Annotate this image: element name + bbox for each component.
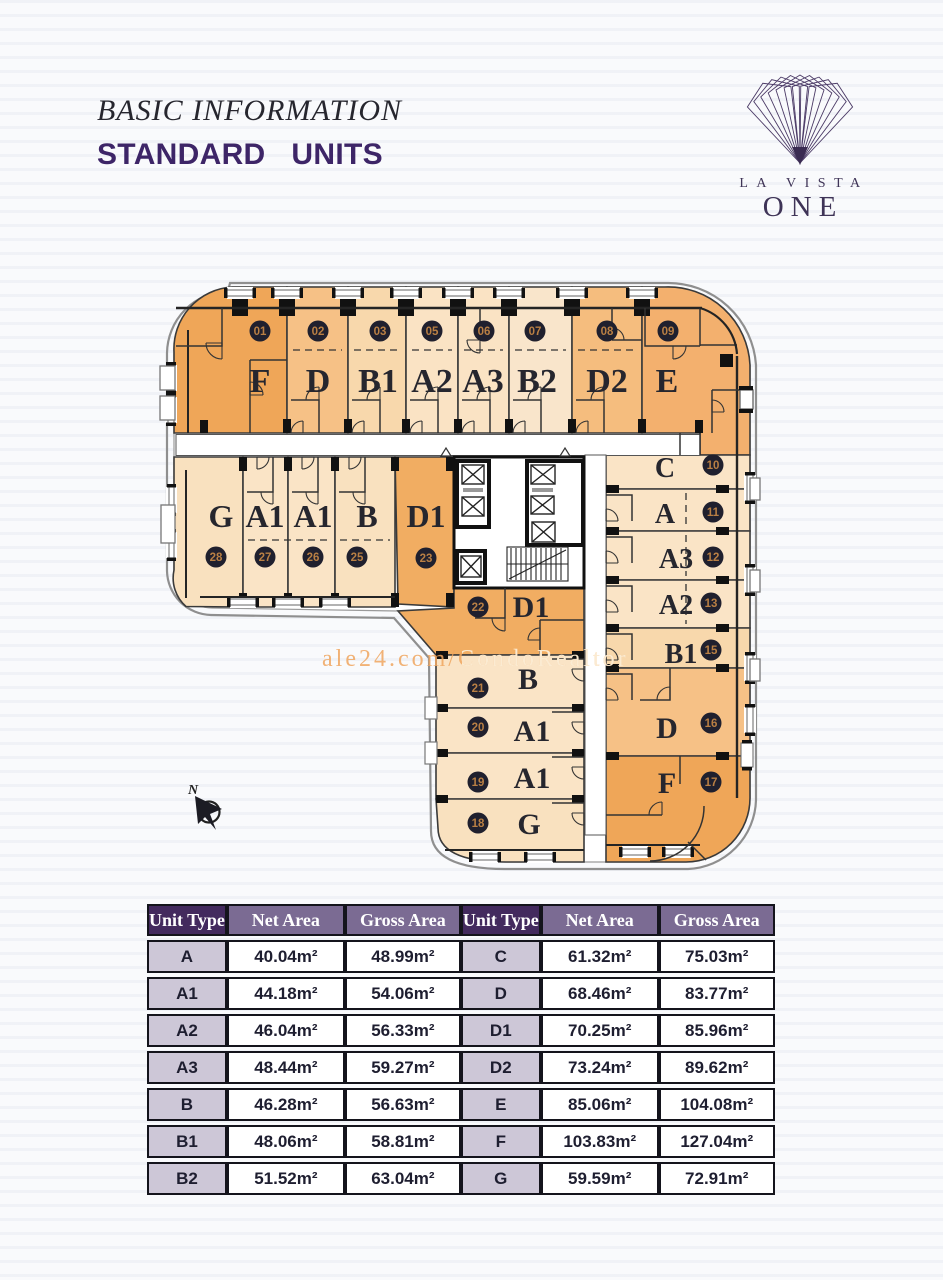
- svg-text:B1: B1: [358, 363, 398, 400]
- svg-text:03: 03: [374, 326, 387, 338]
- svg-text:D: D: [656, 712, 678, 745]
- svg-text:15: 15: [705, 645, 718, 657]
- svg-text:C: C: [655, 453, 675, 484]
- svg-text:19: 19: [472, 777, 485, 789]
- svg-text:LA VISTA: LA VISTA: [739, 176, 868, 191]
- svg-text:F: F: [658, 767, 676, 800]
- svg-text:28: 28: [210, 552, 223, 564]
- svg-text:10: 10: [707, 460, 720, 472]
- svg-text:09: 09: [662, 326, 675, 338]
- svg-text:08: 08: [601, 326, 614, 338]
- svg-text:B1: B1: [665, 639, 698, 670]
- svg-text:22: 22: [472, 602, 485, 614]
- svg-text:A1: A1: [514, 715, 551, 748]
- svg-text:G: G: [209, 498, 234, 534]
- svg-text:D1: D1: [513, 591, 550, 624]
- svg-text:01: 01: [254, 326, 267, 338]
- svg-text:A: A: [655, 499, 676, 530]
- svg-text:B: B: [356, 498, 377, 534]
- svg-text:E: E: [656, 363, 679, 400]
- svg-text:13: 13: [705, 598, 718, 610]
- svg-text:06: 06: [478, 326, 491, 338]
- svg-text:12: 12: [707, 552, 720, 564]
- svg-text:25: 25: [351, 552, 364, 564]
- svg-text:23: 23: [420, 553, 433, 565]
- svg-text:21: 21: [472, 683, 485, 695]
- svg-text:02: 02: [312, 326, 325, 338]
- svg-text:D1: D1: [406, 498, 445, 534]
- svg-text:D2: D2: [586, 363, 628, 400]
- svg-text:A3: A3: [462, 363, 504, 400]
- svg-text:G: G: [517, 808, 540, 841]
- svg-text:07: 07: [529, 326, 542, 338]
- svg-text:A3: A3: [659, 544, 693, 575]
- svg-text:A1: A1: [514, 762, 551, 795]
- svg-text:27: 27: [259, 552, 272, 564]
- svg-text:16: 16: [705, 718, 718, 730]
- svg-text:11: 11: [707, 507, 720, 519]
- svg-text:17: 17: [705, 777, 718, 789]
- svg-text:B2: B2: [517, 363, 557, 400]
- svg-text:A1: A1: [293, 498, 332, 534]
- svg-text:ONE: ONE: [763, 191, 844, 223]
- svg-text:N: N: [187, 783, 199, 798]
- svg-text:D: D: [306, 363, 331, 400]
- svg-text:F: F: [250, 363, 271, 400]
- svg-text:A2: A2: [659, 590, 693, 621]
- svg-text:05: 05: [426, 326, 439, 338]
- svg-text:26: 26: [307, 552, 320, 564]
- svg-text:20: 20: [472, 722, 485, 734]
- svg-text:A2: A2: [411, 363, 453, 400]
- svg-text:18: 18: [472, 818, 485, 830]
- svg-text:A1: A1: [245, 498, 284, 534]
